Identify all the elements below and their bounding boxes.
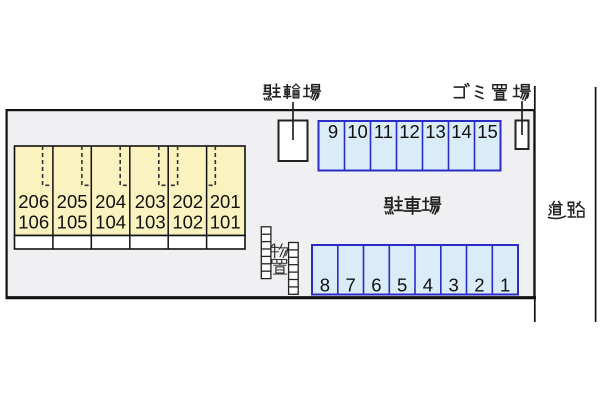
svg-text:11: 11 [374, 121, 393, 142]
svg-text:9: 9 [328, 121, 338, 142]
svg-text:15: 15 [477, 121, 498, 142]
svg-text:106: 106 [18, 212, 49, 233]
svg-text:205: 205 [57, 191, 88, 212]
svg-text:10: 10 [347, 121, 368, 142]
svg-text:103: 103 [135, 212, 166, 233]
svg-text:2: 2 [474, 275, 484, 296]
svg-text:201: 201 [210, 191, 241, 212]
svg-text:13: 13 [425, 121, 446, 142]
svg-text:203: 203 [135, 191, 166, 212]
svg-text:4: 4 [423, 275, 433, 296]
svg-text:14: 14 [451, 121, 472, 142]
svg-text:6: 6 [371, 275, 381, 296]
svg-text:204: 204 [95, 191, 126, 212]
svg-text:206: 206 [18, 191, 49, 212]
svg-text:102: 102 [172, 212, 203, 233]
svg-text:12: 12 [399, 121, 420, 142]
svg-text:1: 1 [500, 275, 510, 296]
svg-text:202: 202 [172, 191, 203, 212]
svg-text:3: 3 [448, 275, 458, 296]
svg-text:101: 101 [210, 212, 241, 233]
svg-text:105: 105 [57, 212, 88, 233]
svg-text:104: 104 [95, 212, 126, 233]
svg-text:7: 7 [345, 275, 355, 296]
svg-text:8: 8 [320, 275, 330, 296]
svg-text:5: 5 [397, 275, 407, 296]
